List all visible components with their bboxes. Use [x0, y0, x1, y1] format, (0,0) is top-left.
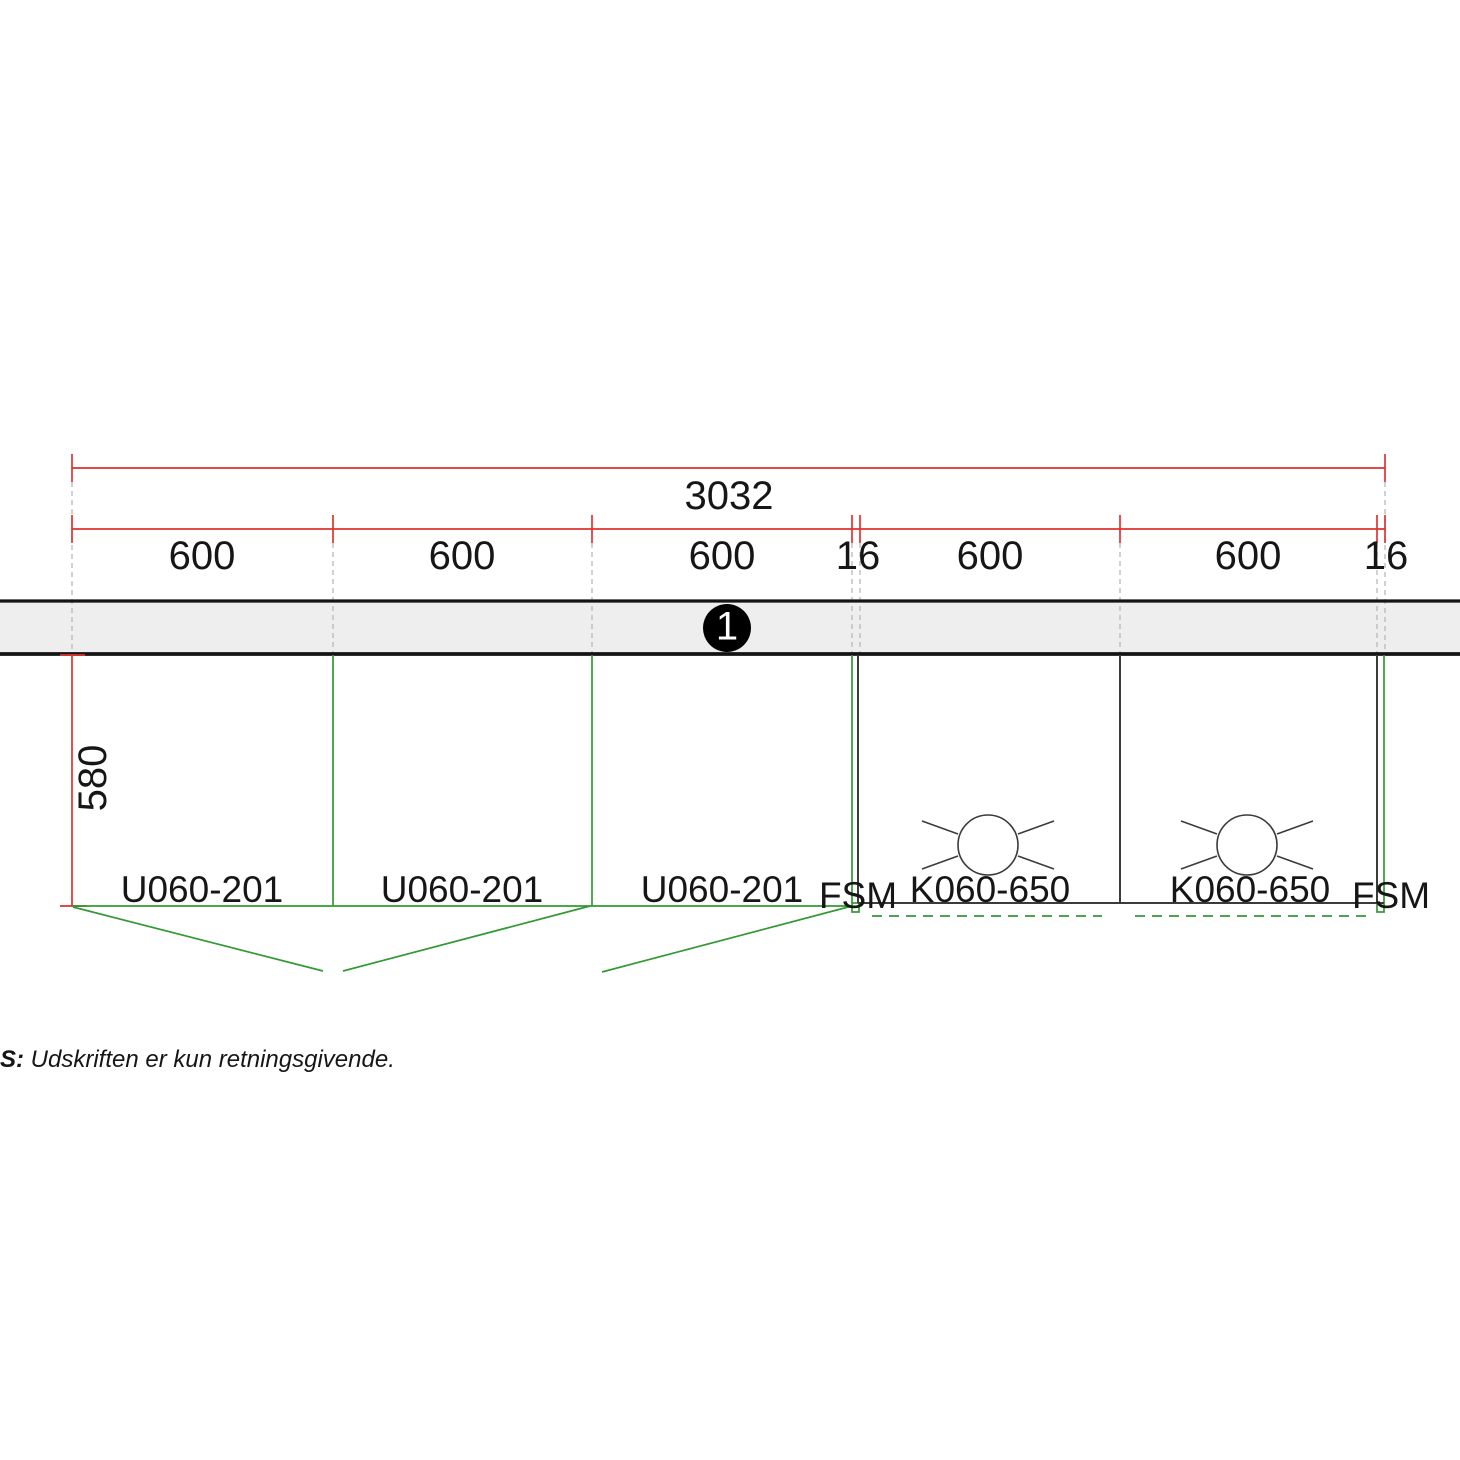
lamp-icon — [922, 815, 1054, 875]
lamp-ray — [1181, 821, 1217, 834]
base-cabinet-label: U060-201 — [121, 870, 284, 911]
lamp-ray — [1277, 856, 1313, 869]
lamp-ray — [922, 856, 958, 869]
lamp-circle — [1217, 815, 1277, 875]
segment-dimension-label: 16 — [1364, 534, 1409, 578]
lamp-ray — [922, 821, 958, 834]
lamp-icon — [1181, 815, 1313, 875]
base-cabinet-label: U060-201 — [381, 870, 544, 911]
disclaimer-prefix: S: — [0, 1046, 24, 1073]
door-swing-line — [343, 906, 590, 971]
filler-label: FSM — [1352, 876, 1430, 917]
total-dimension-label: 3032 — [685, 474, 774, 518]
lamp-ray — [1018, 856, 1054, 869]
segment-dimension-label: 600 — [169, 534, 236, 578]
segment-dimension-label: 600 — [689, 534, 756, 578]
cabinet-front-lines — [72, 655, 1384, 972]
lamp-ray — [1277, 821, 1313, 834]
lamp-ray — [1181, 856, 1217, 869]
segment-dimension-label: 600 — [1215, 534, 1282, 578]
lamp-circle — [958, 815, 1018, 875]
wall-cabinet-label: K060-650 — [1170, 870, 1330, 911]
segment-dimension-label: 600 — [429, 534, 496, 578]
segment-dimension-label: 16 — [836, 534, 881, 578]
base-cabinet-label: U060-201 — [641, 870, 804, 911]
door-swing-line — [602, 906, 852, 972]
lamp-ray — [1018, 821, 1054, 834]
disclaimer-text: Udskriften er kun retningsgivende. — [24, 1046, 395, 1073]
door-swing-line — [73, 907, 323, 971]
depth-dimension-label: 580 — [71, 745, 115, 812]
print-preview-page: 3032 600 600 600 16 600 600 16 580 1 U06… — [0, 0, 1460, 1460]
filler-label: FSM — [819, 876, 897, 917]
disclaimer-note: S: Udskriften er kun retningsgivende. — [0, 1046, 395, 1074]
segment-dimension-label: 600 — [957, 534, 1024, 578]
wall-cabinet-label: K060-650 — [910, 870, 1070, 911]
wall-number-label: 1 — [716, 605, 738, 650]
dimension-lines — [60, 454, 1385, 906]
floor-plan-drawing — [0, 0, 1460, 1460]
